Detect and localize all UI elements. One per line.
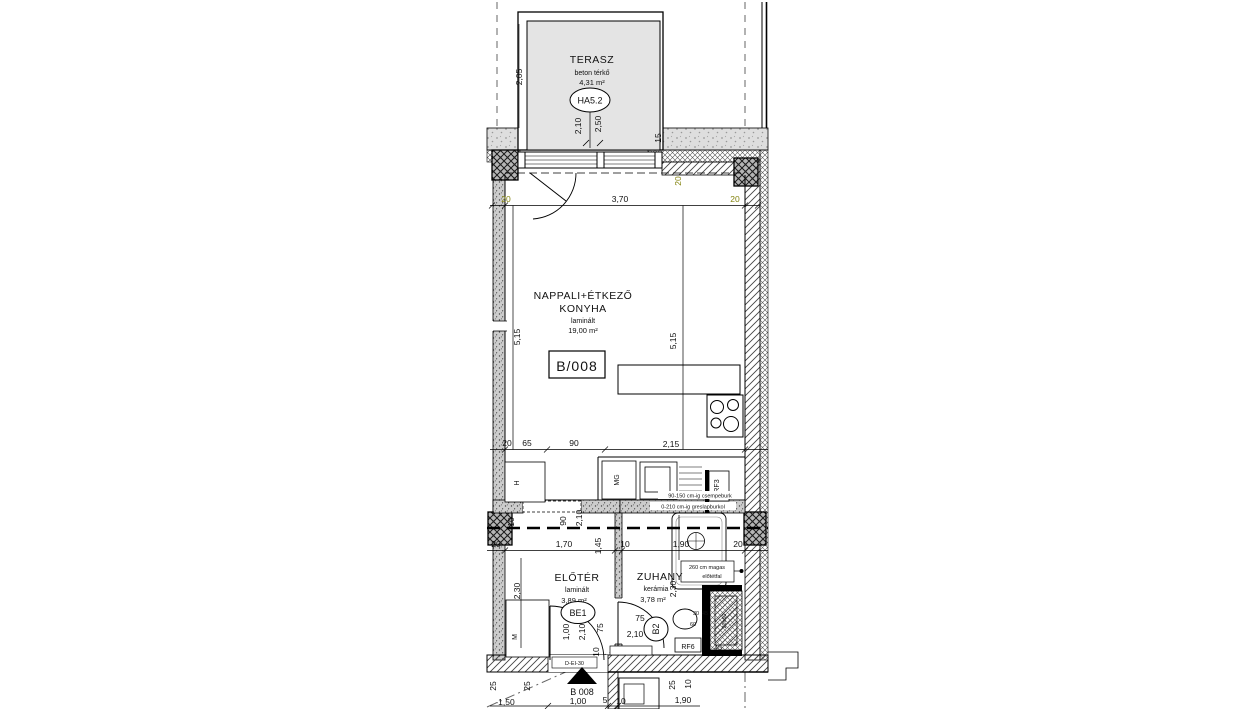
dim-kitchen-90: 90 — [569, 438, 579, 448]
dim-open-210: 2,10 — [574, 509, 584, 526]
dim-open-10: 10 — [506, 517, 516, 527]
dim-top-span: 3,70 — [612, 194, 629, 204]
dim-kitchen-215: 2,15 — [663, 439, 680, 449]
dim-open-90: 90 — [558, 516, 568, 526]
dim-bot-25b: 25 — [522, 681, 532, 691]
terrace-finish: beton térkő — [574, 70, 609, 77]
stub-wall-note-2: előtétfal — [702, 574, 721, 580]
dim-b2-210: 2,10 — [627, 629, 644, 639]
rf3-label: RF3 — [714, 479, 721, 492]
unit-number: B/008 — [556, 358, 598, 374]
terrace-tag: HA5.2 — [577, 96, 602, 106]
terrace-name: TERASZ — [570, 54, 615, 66]
kitchen-tile-note: 90-150 cm-ig csempeburk — [668, 494, 732, 500]
exterior-step-outline — [768, 652, 798, 680]
shower-door-tag: B2 — [651, 623, 661, 634]
dim-corner: 20 — [673, 176, 683, 186]
dim-bot-25r: 25 — [667, 680, 677, 690]
floor-plan-page: TERASZ beton térkő 4,31 m² HA5.2 2,05 2,… — [0, 0, 1260, 709]
shower-finish: kerámia — [644, 586, 669, 593]
dim-height-left: 5,15 — [512, 328, 522, 345]
shaft-size-label: 20x60 — [722, 614, 728, 629]
hall-name: ELŐTÉR — [554, 570, 599, 584]
dim-kitchen-20: 20 — [502, 438, 512, 448]
living-area: 19,00 m² — [568, 326, 598, 335]
dim-wb-45: 45 — [702, 611, 708, 617]
dim-kitchen-65: 65 — [522, 438, 532, 448]
dim-row-20l: 20 — [491, 539, 501, 549]
dim-entry-75: 75 — [595, 623, 605, 633]
dim-wb-60: 60 — [690, 622, 696, 628]
living-name-1: NAPPALI+ÉTKEZŐ — [534, 288, 633, 302]
dim-shaft-45: 45 — [714, 645, 722, 652]
dim-bot-25a: 25 — [488, 681, 498, 691]
dim-terrace-w: 2,50 — [593, 115, 603, 132]
fridge-label: H — [514, 480, 521, 485]
dim-band: 15 — [653, 133, 663, 143]
dim-height-right: 5,15 — [668, 332, 678, 349]
washer-cabinet — [506, 600, 549, 657]
dim-b2-75: 75 — [635, 613, 645, 623]
washer-label: M — [512, 634, 519, 640]
dim-terrace-d: 2,10 — [573, 117, 583, 134]
living-name-2: KONYHA — [559, 303, 606, 315]
dim-top-right: 20 — [730, 194, 740, 204]
dim-bot-10: 10 — [616, 696, 626, 706]
unit-number-box: B/008 — [549, 351, 605, 378]
hall-door-tag: BE1 — [569, 608, 586, 618]
shower-tile-note: 0-210 cm-ig greslapburkol — [661, 505, 725, 511]
cooktop — [707, 395, 743, 437]
dim-row-190: 1,90 — [673, 539, 690, 549]
dim-terrace-height: 2,05 — [514, 68, 524, 85]
dim-bot-5: 5 — [603, 695, 608, 705]
terrace-area: 4,31 m² — [579, 78, 605, 87]
dim-entry-100: 1,00 — [561, 623, 571, 640]
living-finish: laminált — [571, 318, 595, 325]
fire-door-label: D-EI-30 — [565, 661, 584, 667]
dim-row-10: 10 — [620, 539, 630, 549]
dim-bot-100: 1,00 — [570, 696, 587, 706]
dim-hall-230: 2,30 — [512, 582, 522, 599]
level-label: -1,50 — [495, 697, 515, 707]
dim-wb-30: 30 — [693, 611, 699, 617]
hall-finish: laminált — [565, 587, 589, 594]
dim-bot-190: 1,90 — [675, 695, 692, 705]
kitchen-counter — [618, 365, 740, 394]
dim-top-left: 20 — [501, 194, 511, 204]
hall-fixtures — [505, 462, 604, 660]
fridge-cabinet — [505, 462, 545, 502]
rf6-label: RF6 — [681, 644, 694, 651]
stub-wall-note-1: 260 cm magas — [689, 565, 725, 571]
dim-open-145: 1,45 — [593, 537, 603, 554]
wall-opening — [523, 501, 581, 512]
dim-bot-10r: 10 — [683, 679, 693, 689]
balcony-door-swing — [530, 173, 576, 219]
shower-area: 3,78 m² — [640, 595, 666, 604]
dishwasher-label: MG — [614, 474, 621, 485]
dim-row-20r: 20 — [733, 539, 743, 549]
floor-plan-drawing: TERASZ beton térkő 4,31 m² HA5.2 2,05 2,… — [0, 0, 1260, 709]
dim-shower-230: 2,30 — [668, 580, 678, 597]
dim-entry-210: 2,10 — [577, 623, 587, 640]
dim-row-170: 1,70 — [556, 539, 573, 549]
dim-entry-10: 10 — [591, 647, 601, 657]
